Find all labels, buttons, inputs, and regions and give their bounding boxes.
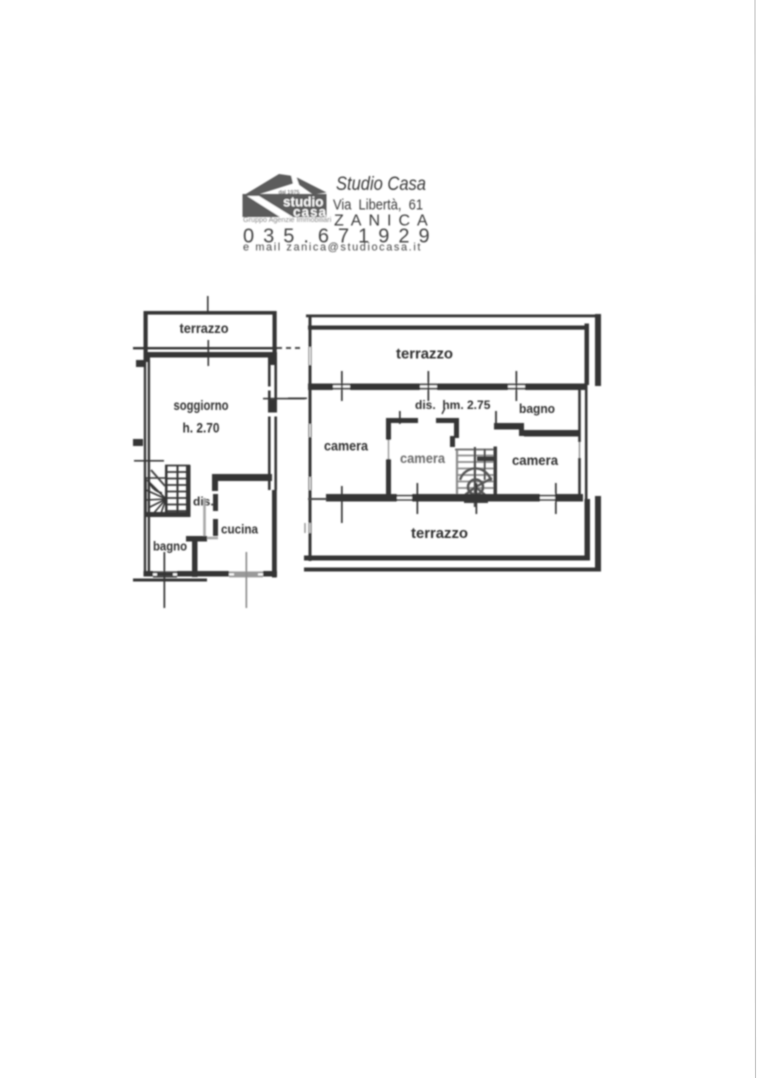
svg-text:e mail zanica@studiocasa.it: e mail zanica@studiocasa.it — [243, 242, 422, 254]
svg-text:cucina: cucina — [221, 522, 259, 537]
svg-text:camera: camera — [512, 452, 558, 468]
svg-text:terrazzo: terrazzo — [180, 320, 229, 336]
svg-text:bagno: bagno — [519, 401, 555, 416]
svg-text:dis. hm. 2.75: dis. hm. 2.75 — [415, 398, 491, 412]
svg-text:Via Libertà, 61: Via Libertà, 61 — [333, 198, 423, 214]
svg-text:camera: camera — [400, 450, 445, 466]
svg-text:soggiorno: soggiorno — [174, 397, 229, 413]
svg-text:terrazzo: terrazzo — [411, 525, 468, 542]
svg-text:terrazzo: terrazzo — [396, 346, 453, 363]
svg-text:camera: camera — [324, 438, 368, 454]
svg-text:bagno: bagno — [153, 539, 187, 554]
svg-text:h. 2.70: h. 2.70 — [183, 420, 220, 436]
svg-text:Gruppo Agenzie Immobiliari: Gruppo Agenzie Immobiliari — [243, 215, 332, 224]
svg-text:Studio Casa: Studio Casa — [336, 174, 426, 195]
